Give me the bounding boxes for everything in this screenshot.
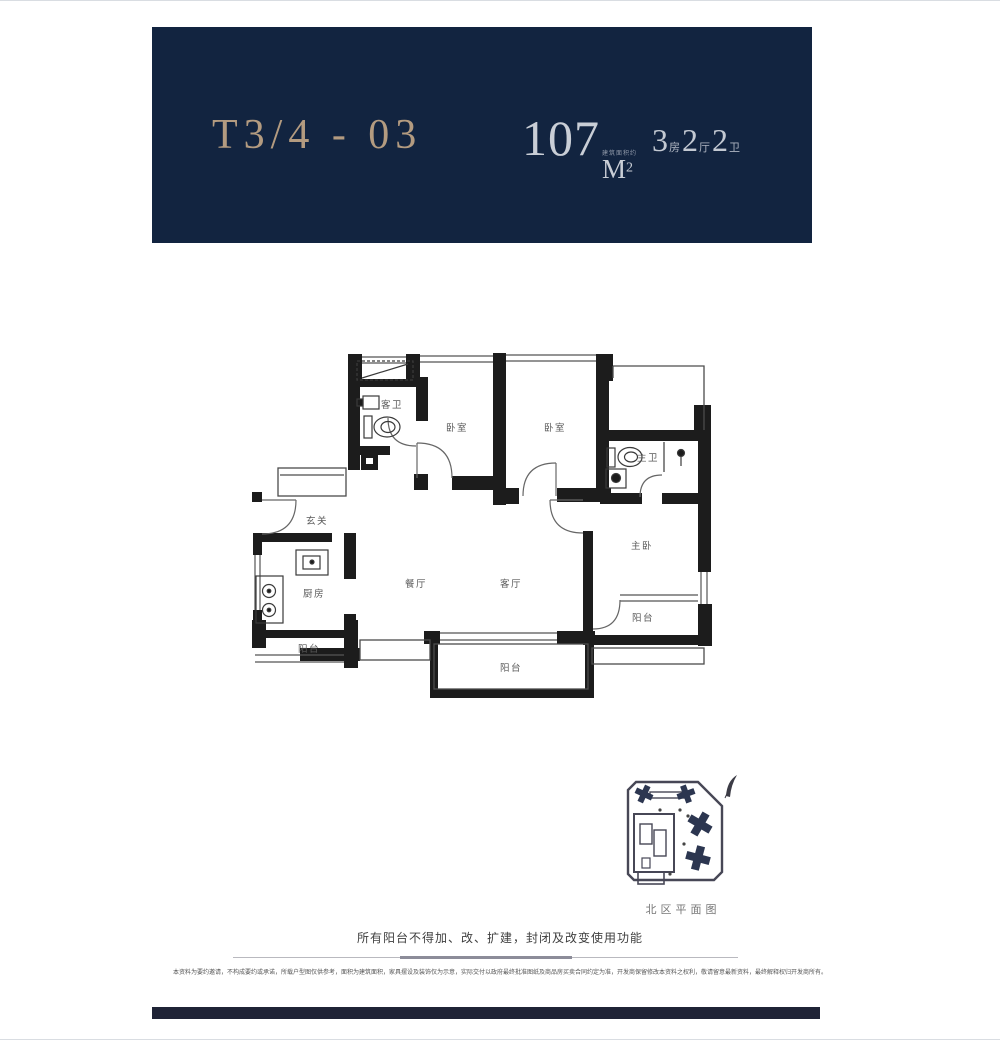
kitchen-sink-icon xyxy=(296,550,328,575)
site-key-plan xyxy=(608,772,758,897)
legal-fine-print: 本资料为要约邀请，不构成要约或承诺，所载户型图仅供参考，面积为建筑面积，家具摆设… xyxy=(150,967,850,976)
room-label-balcony-right: 阳台 xyxy=(632,612,654,624)
room-label-master-bedroom: 主卧 xyxy=(631,540,653,552)
room-label-balcony-left: 阳台 xyxy=(298,643,320,655)
area-value: 107 xyxy=(522,113,600,163)
area-group: 107 建筑面积约 M2 xyxy=(522,113,637,183)
room-label-living: 客厅 xyxy=(500,578,522,590)
baths-count: 2 xyxy=(712,124,728,156)
washer-icon xyxy=(357,361,413,380)
site-plan-caption: 北区平面图 xyxy=(608,901,758,917)
rooms-count: 3 xyxy=(652,124,668,156)
room-label-foyer: 玄关 xyxy=(306,515,328,527)
north-arrow-icon xyxy=(725,775,737,798)
divider-line-dark xyxy=(400,956,572,959)
room-label-bedroom-2: 卧室 xyxy=(544,422,566,434)
guest-bath-toilet-icon xyxy=(364,416,400,438)
fixture-layer xyxy=(256,361,685,623)
bottom-navy-bar xyxy=(152,1007,820,1019)
header-block: T3/4 - 03 107 建筑面积约 M2 3 房 2 厅 2 卫 xyxy=(152,27,812,243)
shaft-icon xyxy=(366,458,373,464)
baths-unit: 卫 xyxy=(729,139,740,155)
balcony-notice: 所有阳台不得加、改、扩建，封闭及改变使用功能 xyxy=(0,929,1000,946)
room-label-bedroom-1: 卧室 xyxy=(446,422,468,434)
area-unit-stack: 建筑面积约 M2 xyxy=(602,151,637,183)
halls-count: 2 xyxy=(682,124,698,156)
rooms-unit: 房 xyxy=(669,139,680,155)
room-label-master-bath: 主卫 xyxy=(637,452,659,464)
layout-group: 3 房 2 厅 2 卫 xyxy=(652,124,742,156)
room-label-guest-bath: 客卫 xyxy=(381,399,403,411)
top-hairline xyxy=(0,0,1000,1)
area-unit: M2 xyxy=(602,157,633,183)
room-label-dining: 餐厅 xyxy=(405,578,427,590)
bottom-hairline xyxy=(0,1039,1000,1040)
floor-plan-drawing: 客卫 卧室 卧室 主卫 玄关 厨房 餐厅 客厅 主卧 阳台 阳台 阳台 xyxy=(245,348,715,704)
room-label-kitchen: 厨房 xyxy=(303,588,325,600)
halls-unit: 厅 xyxy=(699,139,710,155)
floor-plan-page: T3/4 - 03 107 建筑面积约 M2 3 房 2 厅 2 卫 xyxy=(0,0,1000,1042)
shower-icon xyxy=(664,442,685,472)
unit-code: T3/4 - 03 xyxy=(212,111,422,159)
room-label-balcony-bottom: 阳台 xyxy=(500,662,522,674)
guest-bath-sink-icon xyxy=(357,396,379,409)
